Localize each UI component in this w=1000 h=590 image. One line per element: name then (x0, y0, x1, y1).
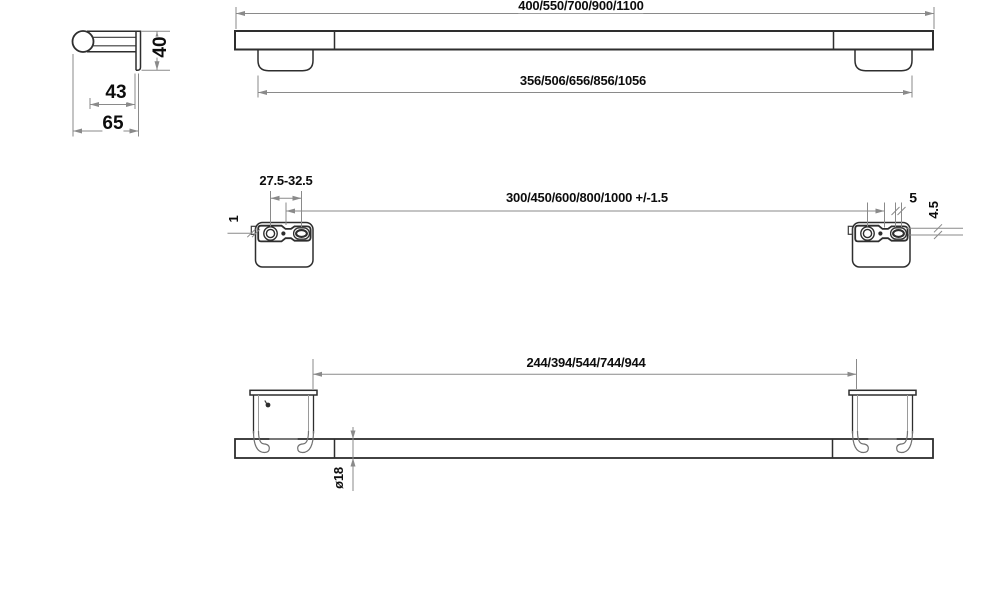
dim-slot-offset: 5 (909, 191, 917, 206)
front-view (235, 31, 933, 71)
bar-front (235, 31, 933, 50)
dim-clear-span: 244/394/544/744/944 (526, 356, 645, 370)
dim-bar-diameter: ø18 (332, 467, 346, 489)
dim-plate-tab: 1 (227, 215, 241, 222)
slot-hole (893, 230, 904, 237)
pin-hole (281, 231, 285, 235)
pin-hole (878, 231, 882, 235)
dim-overall-length: 400/550/700/900/1100 (518, 0, 643, 13)
bar-plan (235, 439, 933, 458)
mount-cap-left (250, 390, 317, 395)
dim-total-depth: 65 (102, 114, 123, 134)
technical-drawing-canvas: 400/550/700/900/1100 356/506/656/856/105… (0, 0, 1000, 590)
dim-height: 40 (151, 36, 171, 57)
dim-slot-adjust-range: 27.5-32.5 (259, 174, 312, 188)
plan-view (235, 390, 933, 458)
bracket-housing-right (855, 50, 912, 71)
mounting-plate-right (848, 223, 910, 268)
dim-slot-height: 4.5 (927, 201, 941, 218)
slot-hole (296, 230, 307, 237)
mount-cap-right (849, 390, 916, 395)
plan-view-dimensions (313, 359, 857, 491)
dim-hole-center-distance: 300/450/600/800/1000 +/-1.5 (506, 191, 668, 205)
dim-bracket-outer-span: 356/506/656/856/1056 (520, 74, 646, 88)
side-view (73, 31, 141, 70)
mounting-plate-left (251, 223, 313, 268)
bracket-housing-left (258, 50, 313, 71)
bar-end-circle (73, 31, 94, 52)
drawing-linework (0, 0, 1000, 590)
dim-bracket-depth: 43 (105, 83, 126, 103)
